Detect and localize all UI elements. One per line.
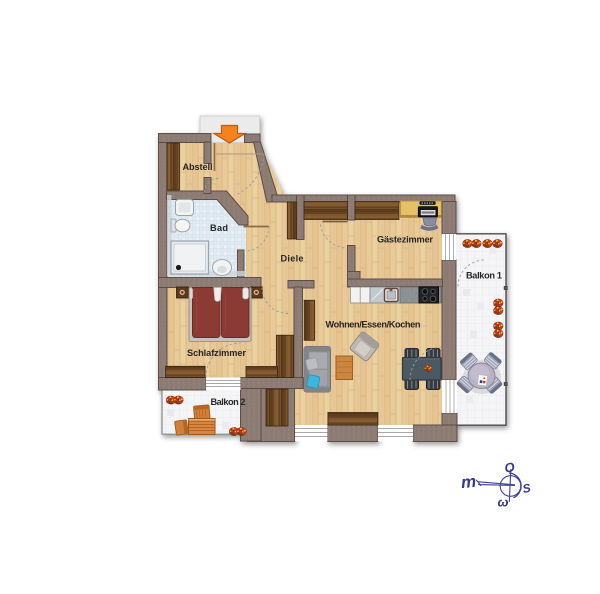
svg-text:Gästezimmer: Gästezimmer bbox=[377, 235, 433, 245]
svg-text:O: O bbox=[504, 459, 516, 475]
svg-text:Balkon 2: Balkon 2 bbox=[211, 397, 246, 407]
svg-text:Schlafzimmer: Schlafzimmer bbox=[187, 348, 246, 358]
svg-text:Bad: Bad bbox=[210, 223, 228, 233]
svg-text:Abstell: Abstell bbox=[183, 162, 213, 172]
svg-text:Wohnen/Essen/Kochen: Wohnen/Essen/Kochen bbox=[326, 320, 421, 330]
svg-text:m: m bbox=[460, 472, 477, 492]
svg-text:Balkon 1: Balkon 1 bbox=[466, 271, 502, 281]
svg-text:Diele: Diele bbox=[281, 254, 304, 264]
svg-text:ω: ω bbox=[498, 495, 509, 510]
